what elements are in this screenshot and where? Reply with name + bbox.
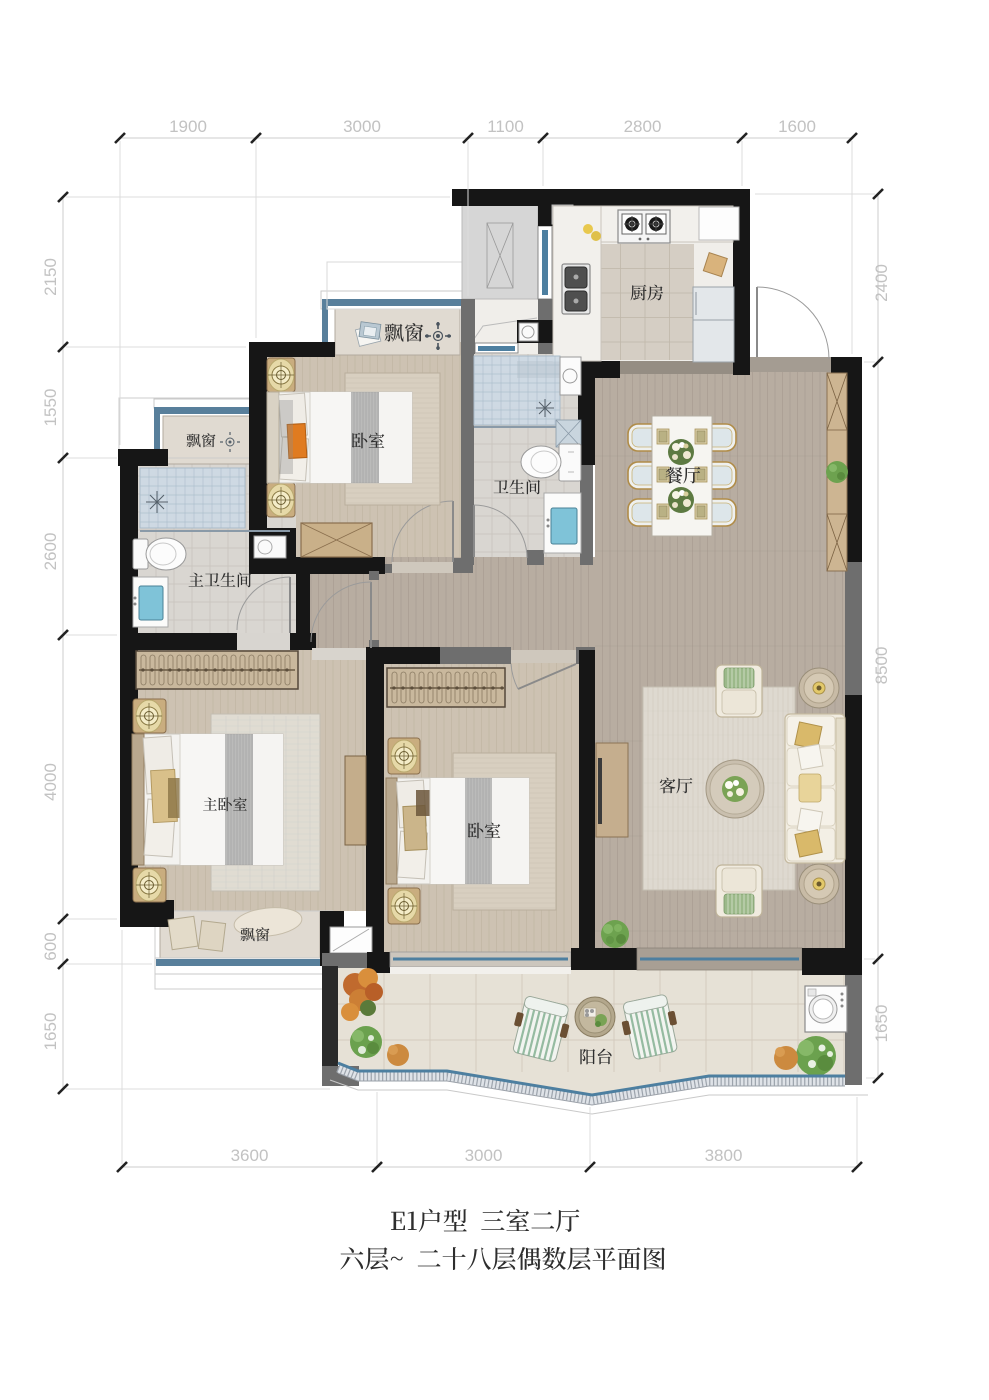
svg-text:1550: 1550 — [41, 389, 60, 427]
svg-text:4000: 4000 — [41, 763, 60, 801]
svg-text:1600: 1600 — [778, 117, 816, 136]
svg-text:1100: 1100 — [487, 117, 524, 136]
svg-text:600: 600 — [41, 932, 60, 960]
svg-text:3000: 3000 — [343, 117, 381, 136]
svg-text:8500: 8500 — [872, 647, 891, 685]
svg-text:3600: 3600 — [231, 1146, 269, 1165]
svg-text:1650: 1650 — [872, 1005, 891, 1043]
svg-text:2400: 2400 — [872, 264, 891, 302]
svg-text:2600: 2600 — [41, 533, 60, 571]
svg-text:2800: 2800 — [624, 117, 662, 136]
svg-text:1900: 1900 — [169, 117, 207, 136]
svg-text:2150: 2150 — [41, 258, 60, 296]
svg-text:1650: 1650 — [41, 1013, 60, 1051]
svg-text:3800: 3800 — [705, 1146, 743, 1165]
svg-text:3000: 3000 — [465, 1146, 503, 1165]
